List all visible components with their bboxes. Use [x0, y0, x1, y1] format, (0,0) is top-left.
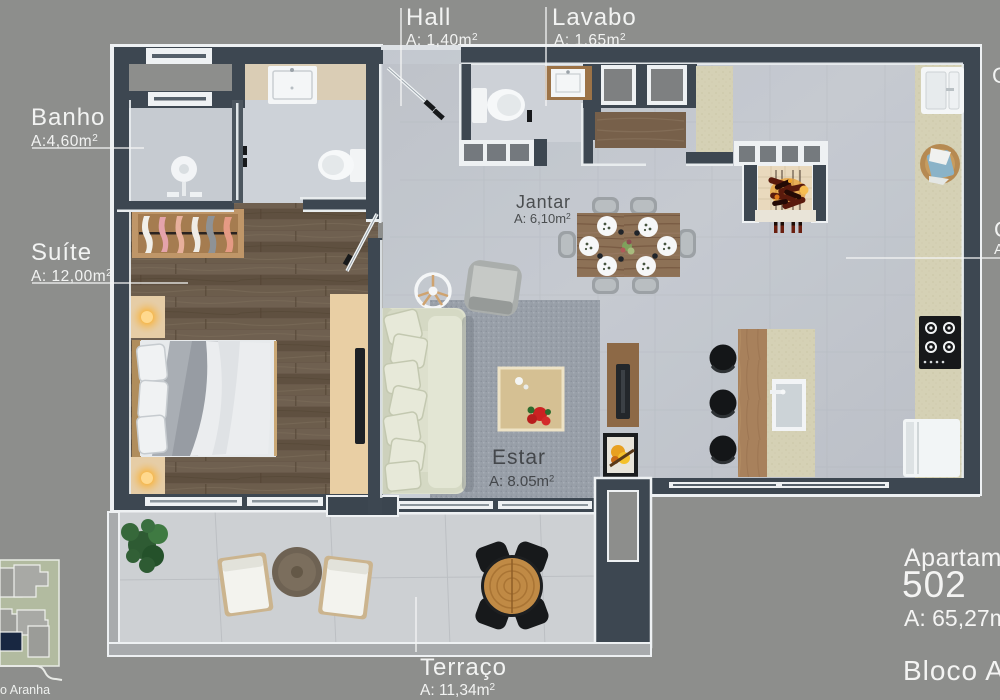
- svg-text:o Aranha: o Aranha: [0, 683, 50, 697]
- svg-text:A: 11,34m2: A: 11,34m2: [420, 682, 496, 699]
- svg-text:502: 502: [902, 564, 967, 605]
- svg-text:A: 8.05m2: A: 8.05m2: [489, 473, 554, 490]
- svg-text:Hall: Hall: [406, 4, 451, 31]
- svg-text:Lavabo: Lavabo: [552, 4, 637, 31]
- svg-text:A: 65,27m2: A: 65,27m2: [904, 605, 1000, 631]
- svg-text:Co: Co: [994, 217, 1000, 242]
- svg-text:A:4,60m2: A:4,60m2: [31, 133, 98, 150]
- svg-text:A: 1,65m2: A: 1,65m2: [554, 32, 626, 49]
- svg-text:Bloco A: Bloco A: [903, 655, 1000, 686]
- svg-text:A:: A:: [994, 241, 1000, 258]
- svg-text:Banho: Banho: [31, 104, 105, 131]
- svg-text:Estar: Estar: [492, 446, 546, 469]
- svg-text:A: 6,10m2: A: 6,10m2: [514, 211, 571, 226]
- svg-text:A: 12,00m2: A: 12,00m2: [31, 268, 112, 285]
- svg-text:Terraço: Terraço: [420, 654, 507, 681]
- svg-text:A: 1,40m2: A: 1,40m2: [406, 32, 478, 49]
- svg-text:Suíte: Suíte: [31, 239, 92, 266]
- svg-text:Coz: Coz: [992, 63, 1000, 88]
- svg-text:Jantar: Jantar: [516, 192, 571, 212]
